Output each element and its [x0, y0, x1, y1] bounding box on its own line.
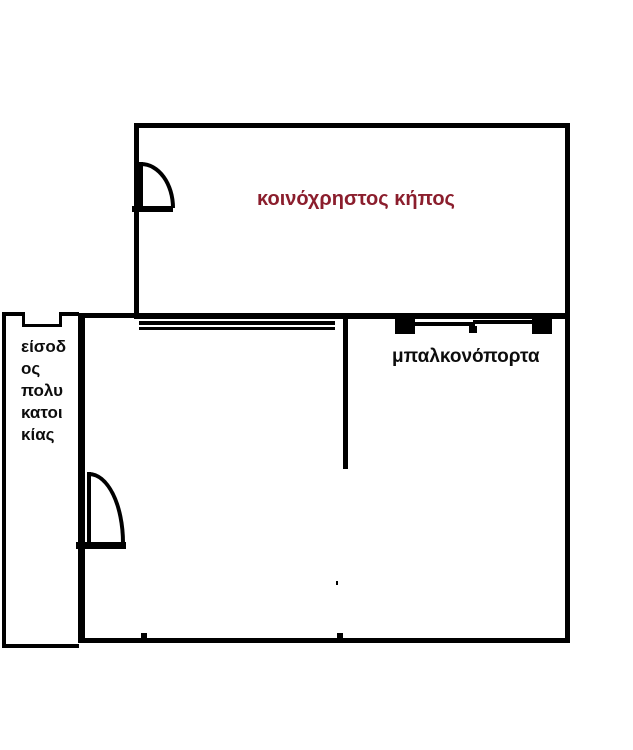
entrance-door-notch-icon	[22, 312, 62, 327]
balcony-door-left-panel	[413, 322, 475, 326]
room-divider-wall	[343, 318, 348, 469]
balcony-door-left-jamb	[395, 318, 415, 334]
garden-door-threshold	[132, 206, 173, 212]
garden-room	[134, 123, 570, 319]
window-wall-icon	[139, 321, 335, 330]
bottom-wall-tick	[141, 633, 147, 638]
balcony-door-right-panel	[473, 320, 533, 324]
stray-mark	[336, 581, 338, 585]
balcony-door-right-jamb	[532, 318, 552, 334]
apartment-door-threshold	[76, 542, 126, 549]
balcony-door-center-nub	[469, 326, 477, 333]
floorplan-canvas: είσοδ ος πολυ κατοι κίας κοινόχρηστος κή…	[0, 0, 633, 750]
bottom-wall-tick	[337, 633, 343, 638]
balcony-door-label: μπαλκονόπορτα	[392, 346, 540, 368]
entrance-label: είσοδ ος πολυ κατοι κίας	[21, 336, 66, 446]
garden-label: κοινόχρηστος κήπος	[257, 188, 455, 211]
